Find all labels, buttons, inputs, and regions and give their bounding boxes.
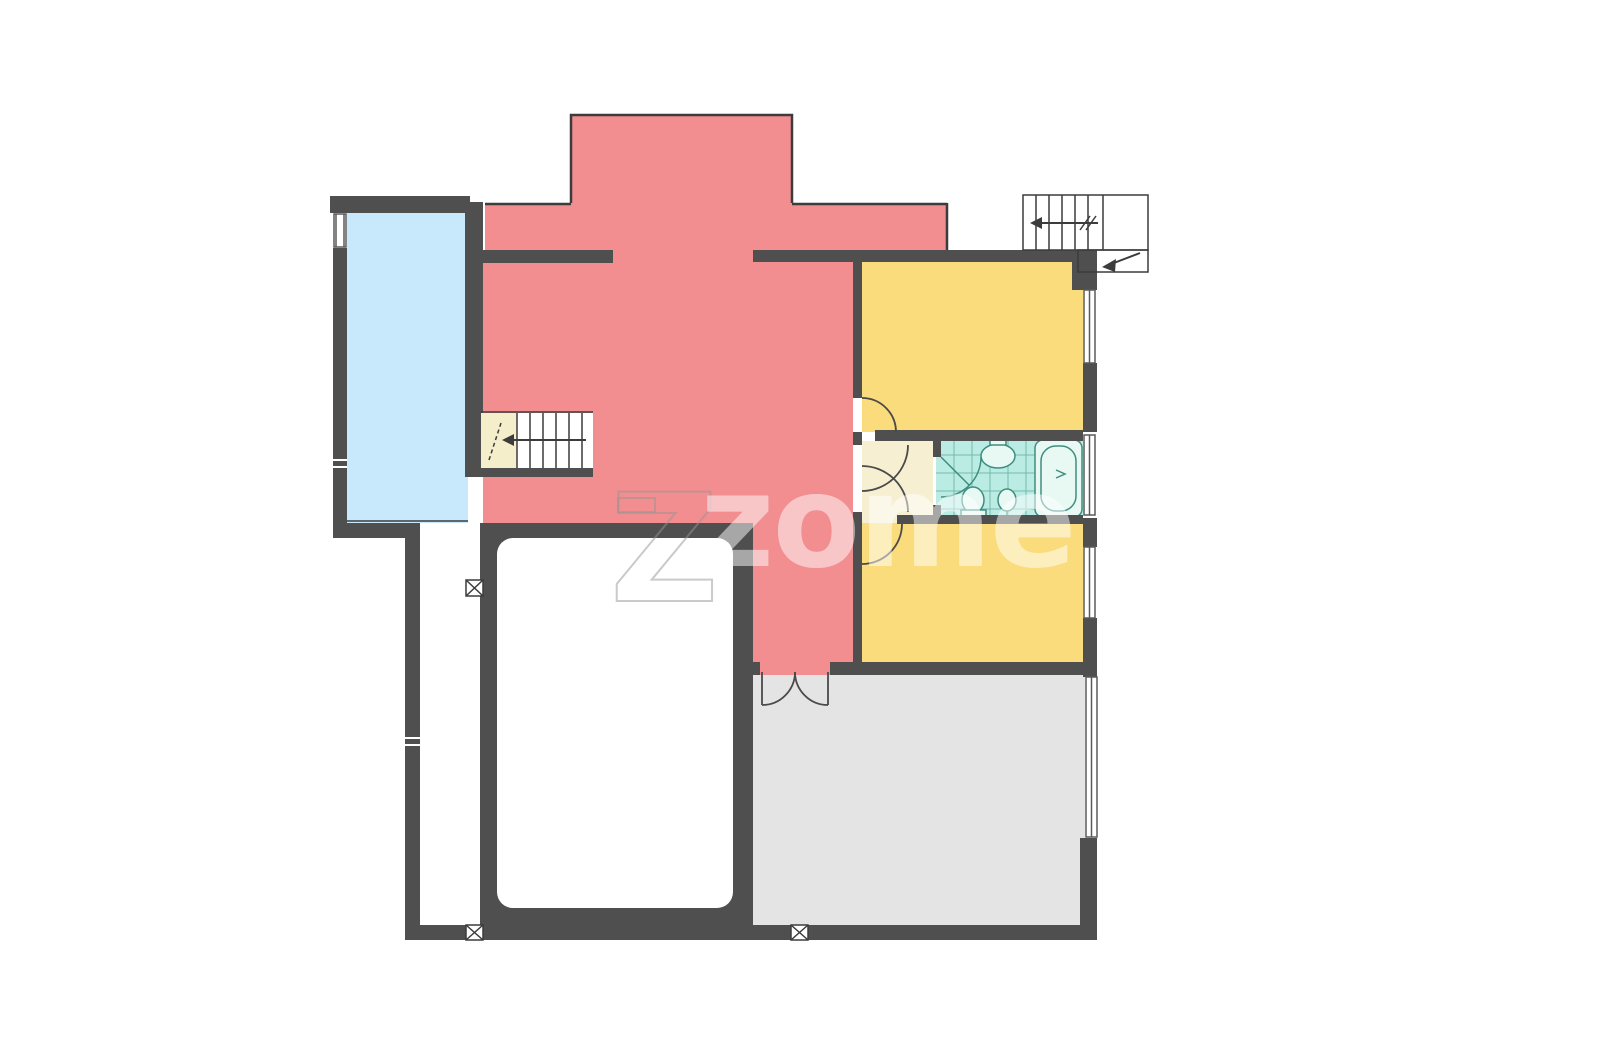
living-room-bay-floor (571, 115, 792, 203)
wall-balcony-living-divider (465, 202, 483, 477)
wall-patio-top (830, 662, 1097, 675)
wall-right-seg4 (1080, 838, 1097, 940)
wall-living-upper-left (465, 250, 613, 263)
column-marker (466, 580, 483, 596)
wall-balcony-bottom (333, 523, 420, 538)
window-bedroom-south (1084, 547, 1095, 618)
wall-under-stairs (480, 468, 593, 477)
wall-balcony-top (330, 196, 470, 213)
wall-right-corner-top (1072, 250, 1097, 290)
patio-floor (750, 675, 1085, 925)
window-bathroom (1084, 435, 1095, 515)
wall-right-seg1 (1083, 363, 1097, 432)
bedroom-north-floor (862, 262, 1083, 432)
floor-plan-canvas: Z zome (0, 0, 1600, 1062)
wall-bedroom-bathroom-divider (875, 430, 1083, 441)
wall-living-bedroom-divider-upper (853, 262, 862, 398)
column-marker (466, 925, 483, 940)
watermark-text: zome (700, 448, 1075, 597)
window-patio (1086, 677, 1097, 837)
column-marker (791, 925, 808, 940)
window-bedroom-north (1084, 290, 1095, 363)
opening-balcony-left (334, 214, 346, 247)
ext-stair-arrowhead2 (1102, 259, 1116, 272)
wall-hall-jamb-top (853, 432, 862, 445)
living-room-upper-floor (485, 203, 947, 250)
wall-balcony-left (333, 248, 347, 523)
balcony-floor (347, 213, 468, 523)
wall-right-seg2 (1083, 518, 1097, 547)
wall-outer-bottom (405, 925, 1097, 940)
floor-plan-drawing: Z zome (0, 0, 1600, 1062)
wall-top-right (753, 250, 1087, 262)
staircase-interior (481, 412, 593, 468)
